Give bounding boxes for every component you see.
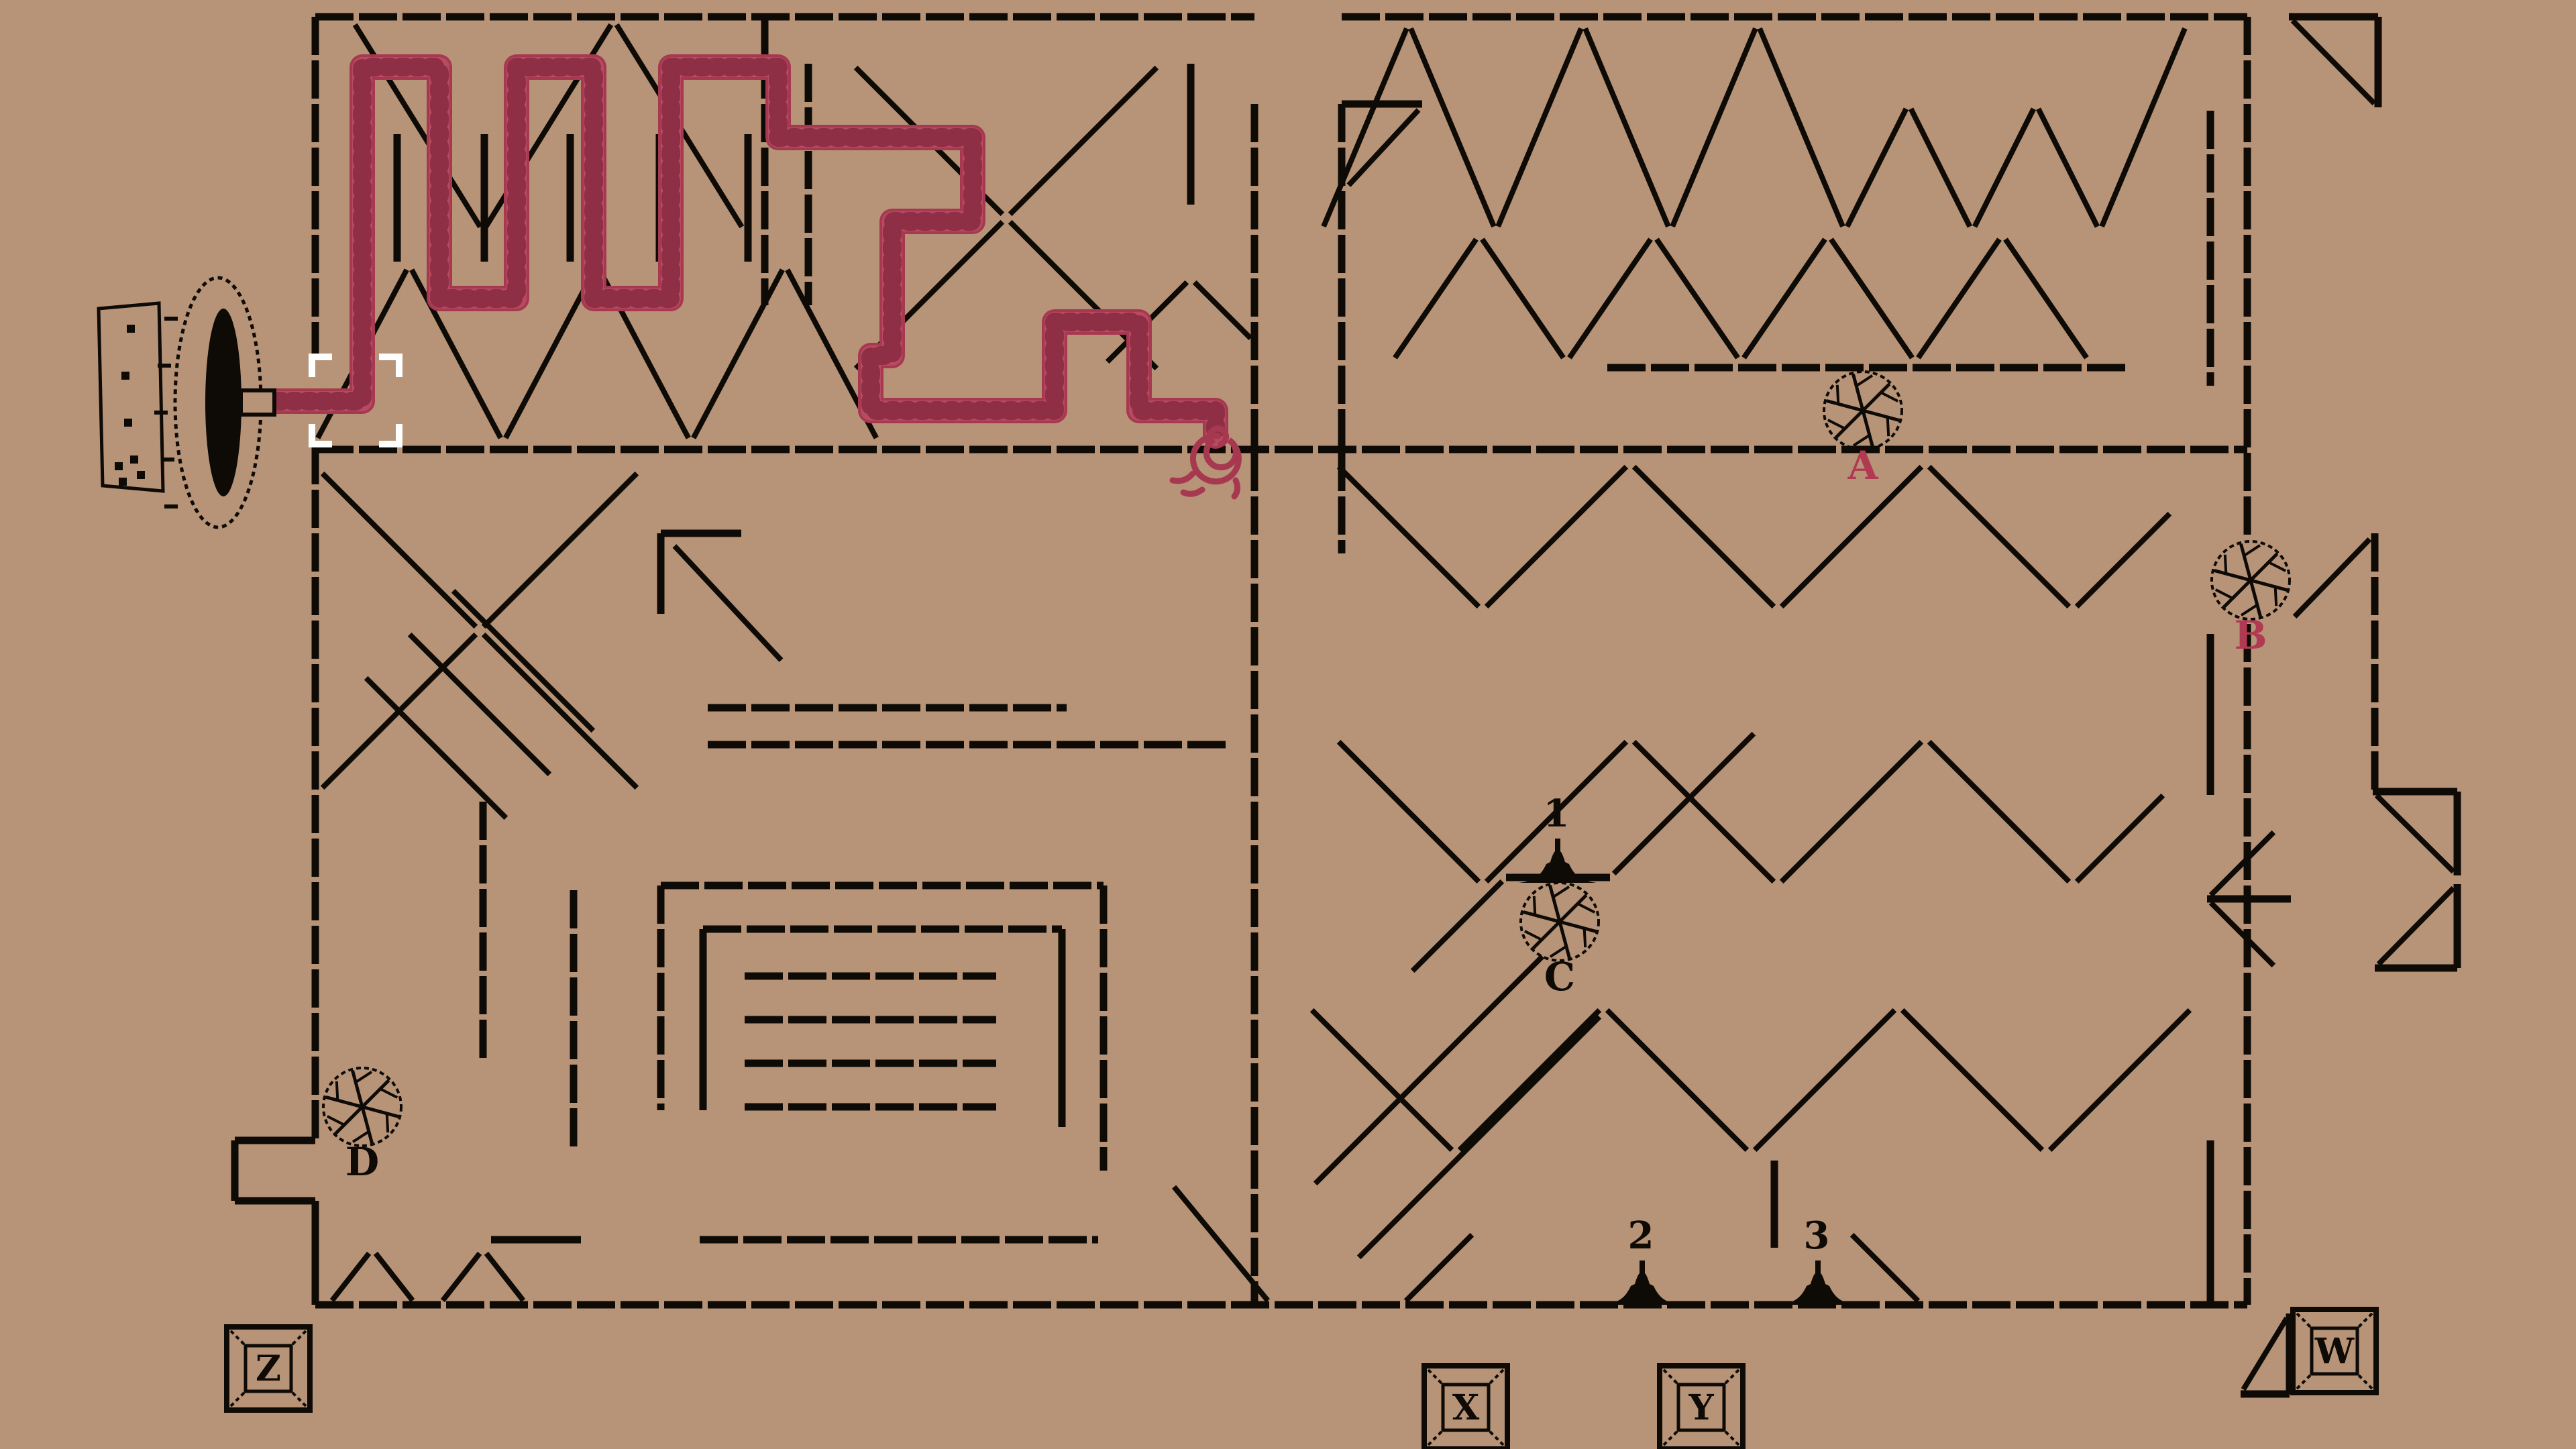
flag-label: 3 <box>1804 1214 1830 1258</box>
maze-svg: ABCD123ZXYW <box>0 0 2576 1449</box>
flag-label: 2 <box>1628 1214 1654 1258</box>
box-label: X <box>1452 1387 1480 1428</box>
pinwheel-label: C <box>1544 954 1575 1000</box>
box-label: W <box>2314 1331 2355 1372</box>
entrance-opening <box>205 309 241 496</box>
entrance-connector <box>241 390 274 415</box>
box-label: Y <box>1688 1387 1714 1428</box>
pinwheel-label: B <box>2234 612 2267 658</box>
maze-canvas[interactable]: ABCD123ZXYW <box>0 0 2576 1449</box>
flag-label: 1 <box>1544 792 1570 836</box>
pinwheel-label: D <box>345 1139 379 1185</box>
box-label: Z <box>256 1348 281 1389</box>
pinwheel-label: A <box>1847 443 1878 488</box>
